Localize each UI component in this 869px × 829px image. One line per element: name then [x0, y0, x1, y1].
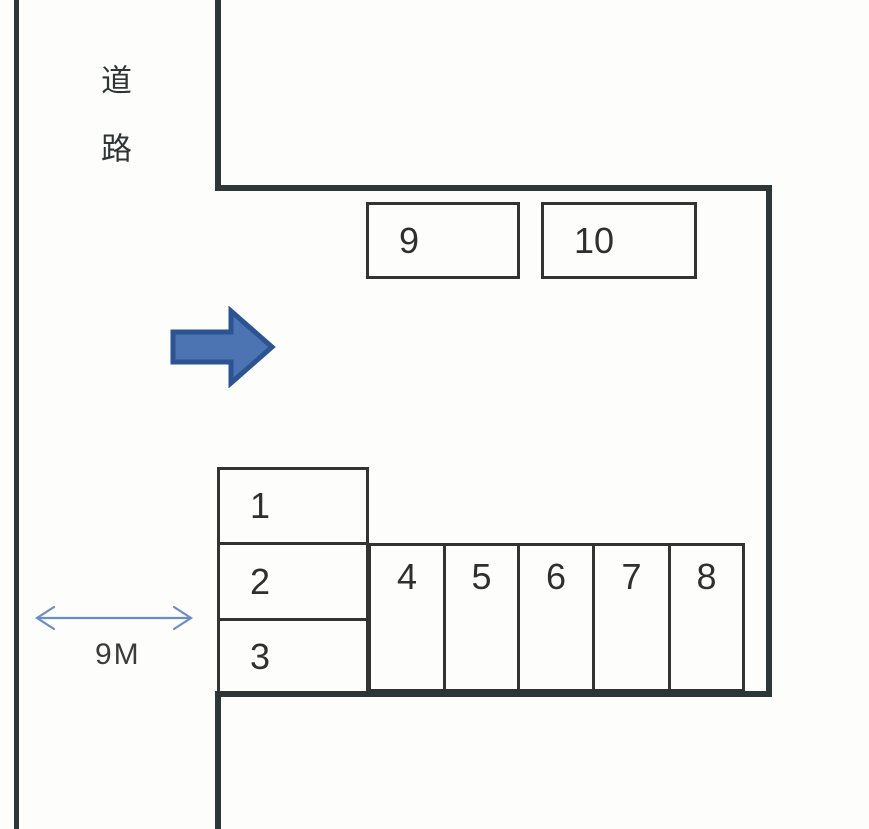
entrance-arrow-shape: [173, 311, 272, 383]
space-number: 9: [399, 223, 419, 259]
parking-space-10: 10: [541, 202, 697, 279]
space-number: 4: [397, 559, 417, 595]
boundary-top-left-vertical-line: [215, 0, 221, 191]
parking-space-8: 8: [668, 543, 745, 692]
parking-space-3: 3: [217, 618, 369, 695]
parking-space-4: 4: [368, 543, 446, 692]
parking-space-7: 7: [592, 543, 671, 692]
entrance-arrow-icon: [170, 306, 276, 388]
space-number: 3: [250, 639, 270, 675]
dimension-label: 9M: [95, 640, 141, 670]
road-label: 道路: [98, 64, 129, 200]
boundary-bottom-left-vertical-line: [215, 691, 221, 829]
boundary-top-line: [215, 185, 772, 191]
space-number: 8: [696, 559, 716, 595]
boundary-right-line: [766, 185, 772, 697]
parking-space-5: 5: [443, 543, 520, 692]
space-number: 10: [574, 223, 614, 259]
space-number: 6: [546, 559, 566, 595]
space-number: 5: [471, 559, 491, 595]
space-number: 1: [250, 488, 270, 524]
parking-space-2: 2: [217, 542, 369, 621]
parking-diagram: 道路 9 10 1 2 3 4 5 6 7 8 9M: [0, 0, 869, 829]
road-edge-line: [14, 0, 19, 829]
parking-space-6: 6: [517, 543, 595, 692]
space-number: 2: [250, 564, 270, 600]
parking-space-9: 9: [366, 202, 520, 279]
space-number: 7: [621, 559, 641, 595]
dimension-arrow-icon: [30, 603, 198, 633]
parking-space-1: 1: [217, 467, 369, 545]
